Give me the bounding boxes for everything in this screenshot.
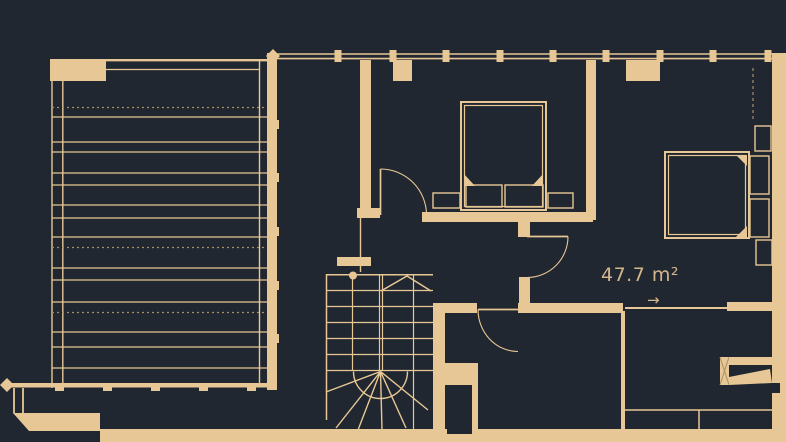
bed2-pillow-top xyxy=(750,156,769,194)
floor-plan: 47.7 m² → xyxy=(0,0,786,442)
wall-pier-2 xyxy=(626,60,660,81)
right-exterior-wall xyxy=(772,53,786,442)
entry-wall-stub xyxy=(727,302,772,311)
entry-door-top-bar xyxy=(729,357,772,365)
room-divider-wall xyxy=(621,311,625,442)
bottom-left-wall-block xyxy=(13,413,100,431)
bed1-outline xyxy=(461,102,546,210)
winder-staircase xyxy=(326,218,433,430)
bed1-pillow-right xyxy=(505,185,543,207)
bed2-nightstand-top xyxy=(755,126,771,151)
stair-stringers xyxy=(353,274,414,430)
hall-bottom-wall-right xyxy=(518,303,623,313)
middle-partition-wall xyxy=(586,60,596,220)
terrace-corner-marker xyxy=(0,378,14,392)
door2-lower-jamb xyxy=(519,277,530,303)
terrace-deck xyxy=(0,53,279,392)
floor-plan-drawing: 47.7 m² → xyxy=(0,0,786,442)
deck-dotted-lines xyxy=(52,108,267,313)
bedroom1-door-swing xyxy=(381,169,427,215)
lower-room-door-swing xyxy=(478,310,518,352)
stair-winder-rays xyxy=(326,372,428,431)
wall-pier-1 xyxy=(393,60,412,81)
deck-board-lines xyxy=(52,117,267,368)
labels: 47.7 m² → xyxy=(601,264,679,309)
area-label: 47.7 m² xyxy=(601,264,679,286)
stair-side-wall xyxy=(433,303,445,442)
bed1-fold-right xyxy=(532,174,543,186)
stair-start-dot xyxy=(349,272,357,280)
bed2-nightstand-bottom xyxy=(756,240,772,265)
hall-wall-stub xyxy=(337,257,371,266)
bedroom1-left-wall xyxy=(360,60,371,210)
stair-break-line xyxy=(381,276,431,291)
entry-arrow-icon: → xyxy=(647,291,660,309)
window-wall xyxy=(266,49,772,81)
hall-door-swing xyxy=(527,237,568,278)
bed1-fold-left xyxy=(464,174,475,186)
entry-door-wedge xyxy=(729,369,772,385)
bed2-outline xyxy=(665,152,749,238)
door2-upper-jamb xyxy=(518,220,530,237)
shaft-right-strip xyxy=(472,376,478,433)
bottom-exterior-wall xyxy=(100,429,786,442)
bedroom1-bottom-wall xyxy=(422,212,593,222)
opening-sill-line xyxy=(625,307,727,309)
shaft-niche xyxy=(447,385,472,434)
hall-bottom-wall-left xyxy=(441,303,477,313)
window-glazing-lines xyxy=(273,54,772,59)
bed1-duvet xyxy=(465,106,543,207)
closet-lines xyxy=(625,410,786,430)
bed2-duvet xyxy=(669,156,746,235)
bottom-left-wall-lines xyxy=(14,388,23,413)
terrace-side-lines xyxy=(52,59,260,388)
bed2-pillow-bottom xyxy=(750,199,769,237)
bedroom1-left-wall-foot xyxy=(357,208,380,218)
entry-door xyxy=(720,357,772,385)
terrace-bottom-edge xyxy=(3,383,277,388)
bed1-pillow-left xyxy=(466,185,502,207)
bed1-nightstand-left xyxy=(433,193,460,208)
right-wall-notch xyxy=(772,383,780,393)
double-bed-1 xyxy=(433,102,573,210)
double-bed-2 xyxy=(665,68,772,265)
bed1-nightstand-right xyxy=(548,193,573,208)
